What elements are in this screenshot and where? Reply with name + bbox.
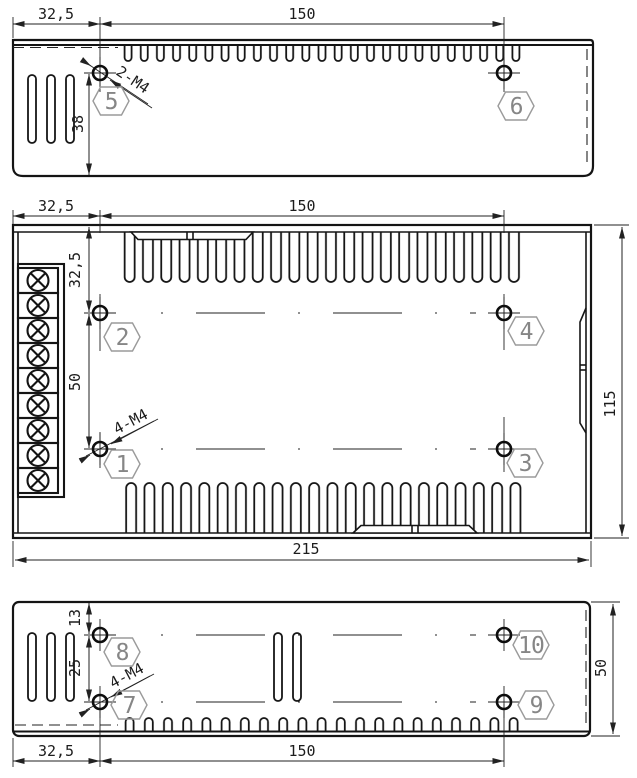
terminal-2 bbox=[18, 293, 58, 318]
top-edge-tab bbox=[131, 232, 253, 240]
terminal-8 bbox=[18, 443, 58, 468]
callout-4-hexagon: 4 bbox=[508, 317, 544, 345]
thread-callout-4-M4-bottom: 4-M4 bbox=[80, 659, 154, 715]
mounting-hole-10 bbox=[488, 619, 520, 651]
drawing-sheet: 32,5 150 38 2-M4 5 6 bbox=[0, 0, 637, 773]
callout-2-number: 2 bbox=[116, 325, 129, 351]
main-plan-view: 32,5 150 32,5 50 115 215 4-M4 2 4 1 bbox=[13, 197, 629, 567]
dim-50-bottom-right: 50 bbox=[592, 659, 610, 677]
side-vent-slots-left bbox=[28, 75, 74, 143]
bottom-edge-vent-row bbox=[120, 714, 523, 732]
callout-10-number: 10 bbox=[518, 633, 544, 659]
callout-5-number: 5 bbox=[105, 89, 118, 115]
thread-label: 2-M4 bbox=[113, 62, 153, 97]
callout-8-hexagon: 8 bbox=[104, 638, 140, 666]
dim-150-top: 150 bbox=[288, 5, 315, 23]
callout-8-number: 8 bbox=[116, 640, 129, 666]
terminal-5 bbox=[18, 368, 58, 393]
callout-3-number: 3 bbox=[519, 451, 532, 477]
dim-150-main-top: 150 bbox=[288, 197, 315, 215]
dim-32-5-top: 32,5 bbox=[38, 5, 74, 23]
terminal-9 bbox=[18, 468, 58, 493]
callout-7-number: 7 bbox=[123, 693, 136, 719]
callout-1-hexagon: 1 bbox=[104, 450, 140, 478]
dim-32-5-main-top: 32,5 bbox=[38, 197, 74, 215]
bottom-view-extension-lines bbox=[13, 602, 620, 767]
dim-32-5-bottom: 32,5 bbox=[38, 742, 74, 760]
terminal-block bbox=[18, 264, 64, 497]
dim-215: 215 bbox=[292, 540, 319, 558]
callout-6-number: 6 bbox=[510, 94, 523, 120]
callout-7-hexagon: 7 bbox=[111, 691, 147, 719]
mounting-hole-4 bbox=[488, 297, 520, 329]
terminal-4 bbox=[18, 343, 58, 368]
terminal-7 bbox=[18, 418, 58, 443]
top-flange-view: 32,5 150 38 2-M4 5 6 bbox=[13, 5, 593, 176]
technical-drawing-canvas: 32,5 150 38 2-M4 5 6 bbox=[0, 0, 637, 773]
callout-6-hexagon: 6 bbox=[498, 92, 534, 120]
center-vent-slots bbox=[274, 633, 301, 701]
dim-32-5-main-left: 32,5 bbox=[66, 252, 84, 288]
top-edge-vent-row bbox=[120, 45, 524, 63]
dim-38: 38 bbox=[69, 115, 87, 133]
callout-10-hexagon: 10 bbox=[513, 631, 549, 659]
dim-50-main-left: 50 bbox=[66, 373, 84, 391]
bottom-flange-view: 13 25 50 32,5 150 4-M4 8 7 10 bbox=[13, 602, 620, 767]
callout-3-hexagon: 3 bbox=[507, 449, 543, 477]
dim-25: 25 bbox=[66, 659, 84, 677]
right-edge-latch bbox=[580, 308, 586, 433]
dim-13: 13 bbox=[66, 609, 84, 627]
dim-150-bottom: 150 bbox=[288, 742, 315, 760]
terminal-3 bbox=[18, 318, 58, 343]
callout-9-hexagon: 9 bbox=[518, 691, 554, 719]
callout-5-hexagon: 5 bbox=[93, 87, 129, 115]
bottom-edge-tab bbox=[353, 526, 477, 534]
callout-2-hexagon: 2 bbox=[104, 323, 140, 351]
dim-115: 115 bbox=[601, 390, 619, 417]
bottom-view-dimensions: 13 25 50 32,5 150 bbox=[13, 603, 613, 761]
top-view-dimensions: 32,5 150 38 bbox=[13, 5, 504, 175]
terminal-6 bbox=[18, 393, 58, 418]
callout-4-number: 4 bbox=[520, 319, 533, 345]
callout-1-number: 1 bbox=[116, 452, 129, 478]
mounting-hole-9 bbox=[488, 686, 520, 718]
callout-9-number: 9 bbox=[530, 693, 543, 719]
terminal-1 bbox=[18, 268, 58, 293]
